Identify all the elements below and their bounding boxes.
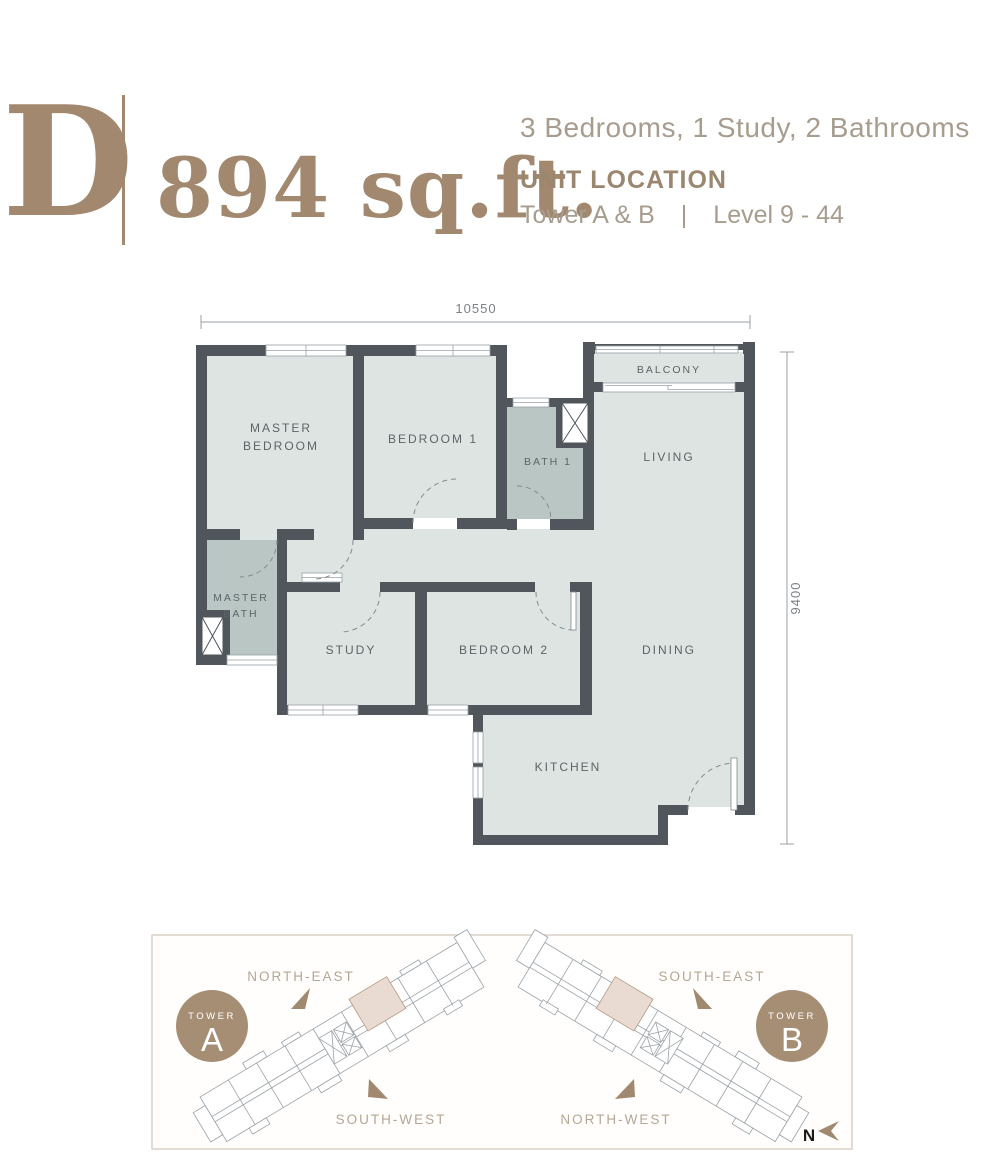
label-dining: DINING xyxy=(642,643,696,657)
tower-a-badge-letter: A xyxy=(201,1021,223,1058)
compass-n-label: N xyxy=(803,1126,815,1145)
label-kitchen: KITCHEN xyxy=(535,760,602,774)
label-bedroom1: BEDROOM 1 xyxy=(388,432,478,446)
tower-a-direction-bottom: SOUTH-WEST xyxy=(336,1112,447,1127)
label-master-bedroom-1: MASTER xyxy=(250,421,312,435)
label-living: LIVING xyxy=(643,450,694,464)
label-bedroom2: BEDROOM 2 xyxy=(459,643,549,657)
label-study: STUDY xyxy=(326,643,377,657)
tower-b-badge-letter: B xyxy=(781,1021,803,1058)
label-master-bath-1: MASTER xyxy=(213,592,269,604)
tower-b-badge: TOWER B xyxy=(756,990,828,1062)
dimension-right-label: 9400 xyxy=(788,582,803,615)
label-bath1: BATH 1 xyxy=(524,456,572,468)
label-master-bath-2: BATH xyxy=(223,608,258,620)
label-balcony: BALCONY xyxy=(637,364,701,376)
brochure-page: D 894 sq.ft. 3 Bedrooms, 1 Study, 2 Bath… xyxy=(0,0,1000,1174)
label-master-bedroom-2: BEDROOM xyxy=(243,439,319,453)
dimension-top-label: 10550 xyxy=(455,301,496,316)
tower-b-direction-top: SOUTH-EAST xyxy=(658,969,765,984)
tower-a-direction-top: NORTH-EAST xyxy=(247,969,355,984)
floor-plan-svg: 10550 9400 MASTER BEDROOM BEDROOM 1 BATH… xyxy=(0,0,1000,1174)
tower-b-direction-bottom: NORTH-WEST xyxy=(560,1112,671,1127)
dimension-top xyxy=(201,315,750,329)
tower-a-badge: TOWER A xyxy=(176,990,248,1062)
